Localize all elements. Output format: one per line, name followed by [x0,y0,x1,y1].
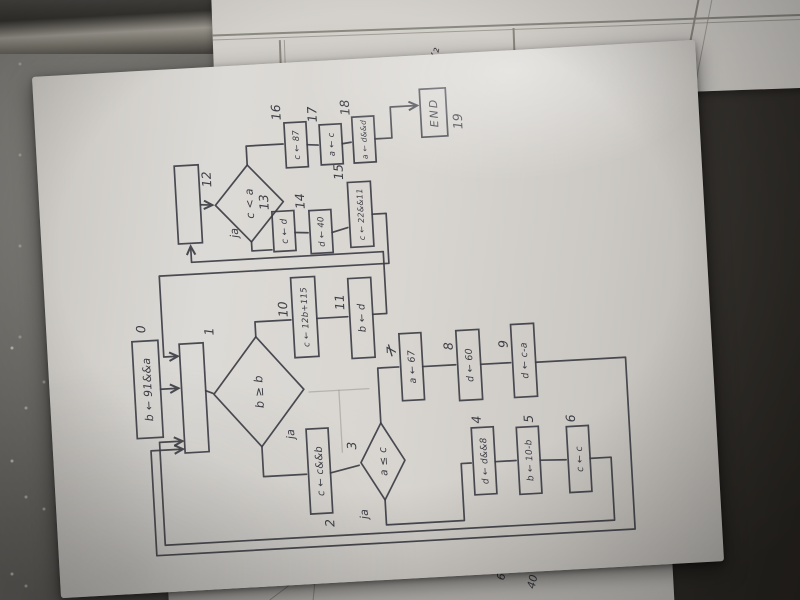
paper-glare [32,40,724,598]
photo-scene: -x₂ 61 — 40 — b ← 91&&a01b ≥ bc ← c&&b2a… [0,0,800,600]
flowchart-paper: b ← 91&&a01b ≥ bc ← c&&b2a ≤ c3d ← d&&84… [32,40,724,598]
under-sheet-line [213,14,800,36]
under-sheet-line [213,19,800,41]
